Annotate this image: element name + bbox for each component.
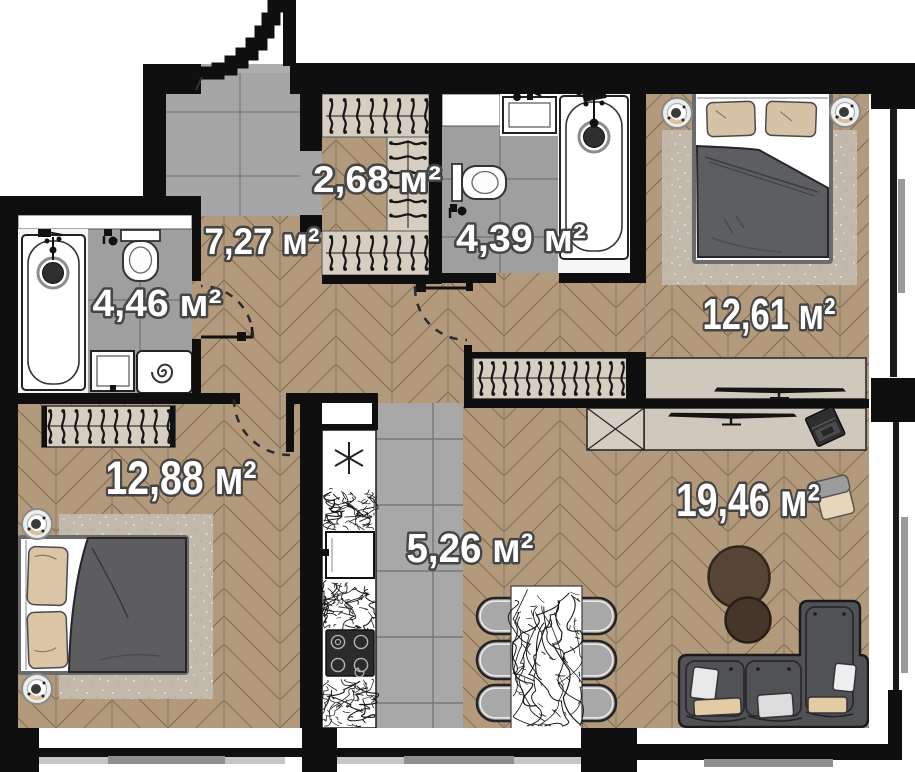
svg-text:19,46 м²: 19,46 м²	[676, 474, 820, 526]
svg-text:2,68 м²: 2,68 м²	[313, 159, 441, 200]
svg-text:12,88 м²: 12,88 м²	[106, 451, 257, 504]
svg-text:4,39 м²: 4,39 м²	[456, 218, 586, 260]
svg-text:12,61 м²: 12,61 м²	[703, 290, 836, 339]
svg-text:4,46 м²: 4,46 м²	[93, 283, 222, 325]
svg-text:7,27 м²: 7,27 м²	[205, 221, 320, 262]
svg-text:5,26 м²: 5,26 м²	[407, 525, 534, 571]
